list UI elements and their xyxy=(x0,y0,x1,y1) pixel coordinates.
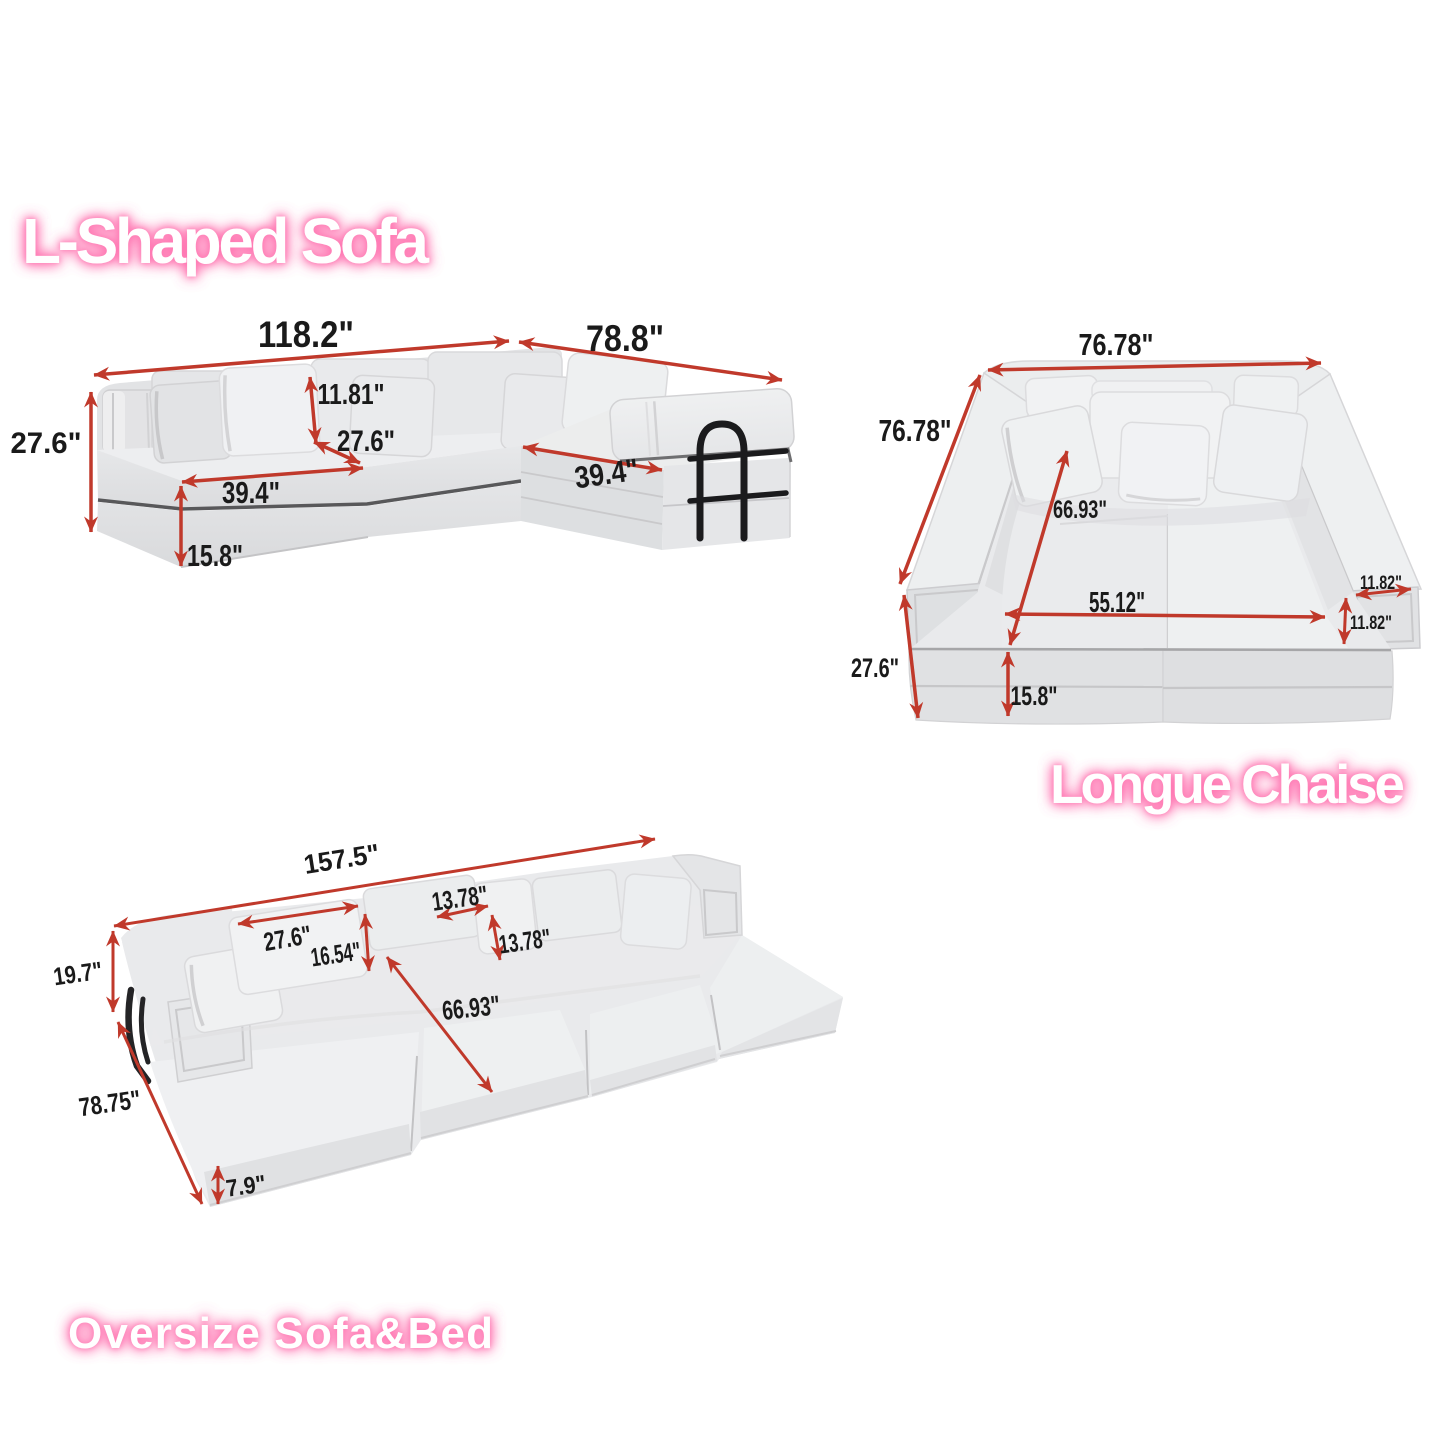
svg-text:11.82": 11.82" xyxy=(1350,613,1392,634)
svg-text:Oversize Sofa&Bed: Oversize Sofa&Bed xyxy=(68,1309,493,1358)
svg-text:Longue Chaise: Longue Chaise xyxy=(1050,753,1405,815)
svg-text:15.8": 15.8" xyxy=(1011,681,1058,711)
svg-text:66.93": 66.93" xyxy=(441,990,502,1026)
svg-text:7.9": 7.9" xyxy=(224,1170,267,1202)
svg-text:27.6": 27.6" xyxy=(11,427,82,460)
svg-text:11.81": 11.81" xyxy=(318,379,385,411)
svg-text:15.8": 15.8" xyxy=(187,538,243,573)
svg-text:L-Shaped Sofa: L-Shaped Sofa xyxy=(22,205,429,277)
svg-text:55.12": 55.12" xyxy=(1089,587,1145,619)
svg-text:118.2": 118.2" xyxy=(258,314,354,355)
svg-text:39.4": 39.4" xyxy=(222,475,280,510)
svg-text:78.8": 78.8" xyxy=(586,318,664,359)
svg-text:11.82": 11.82" xyxy=(1360,573,1402,594)
svg-text:76.78": 76.78" xyxy=(1079,327,1154,362)
svg-text:27.6": 27.6" xyxy=(851,653,899,683)
svg-text:66.93": 66.93" xyxy=(1053,496,1107,524)
svg-text:27.6": 27.6" xyxy=(337,425,395,458)
svg-text:76.78": 76.78" xyxy=(879,413,952,448)
